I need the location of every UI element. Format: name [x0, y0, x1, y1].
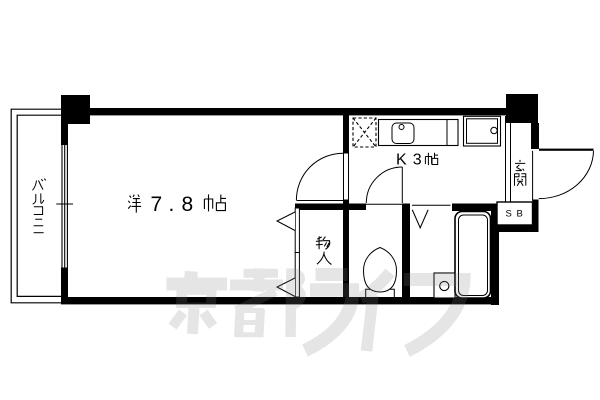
- svg-text:3: 3: [413, 152, 422, 169]
- svg-text:K: K: [396, 152, 407, 169]
- svg-text:7: 7: [151, 193, 163, 216]
- svg-text:B: B: [517, 208, 523, 219]
- svg-text:.: .: [169, 193, 175, 216]
- svg-text:S: S: [506, 208, 512, 219]
- svg-text:8: 8: [182, 193, 194, 216]
